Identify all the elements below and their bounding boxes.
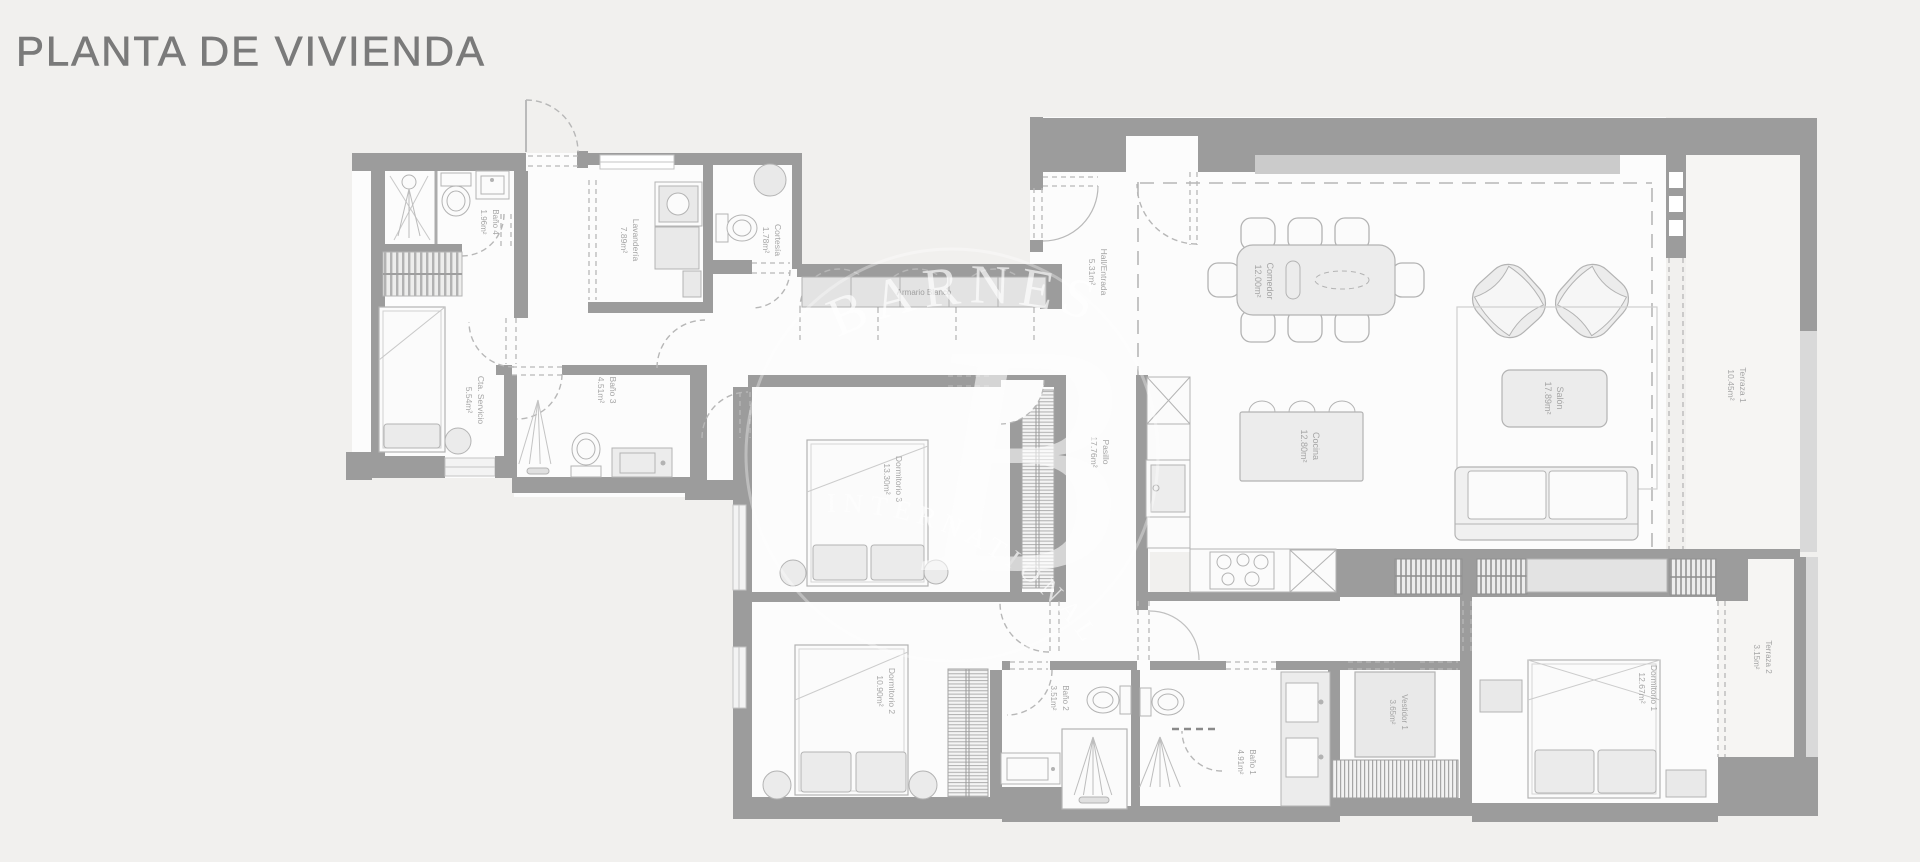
svg-text:Salón: Salón — [1555, 386, 1565, 409]
svg-text:Baño 4: Baño 4 — [491, 209, 500, 235]
svg-text:7.89m²: 7.89m² — [619, 227, 629, 254]
svg-text:12.67m²: 12.67m² — [1637, 672, 1647, 703]
svg-text:4.51m²: 4.51m² — [596, 377, 606, 404]
svg-text:Terraza 2: Terraza 2 — [1764, 640, 1773, 674]
svg-text:Baño 2: Baño 2 — [1061, 685, 1070, 711]
svg-text:5.54m²: 5.54m² — [464, 387, 474, 414]
svg-text:12.00m²: 12.00m² — [1253, 264, 1263, 297]
svg-text:Comedor: Comedor — [1265, 262, 1275, 299]
svg-text:1.96m²: 1.96m² — [479, 210, 488, 235]
svg-text:Terraza 1: Terraza 1 — [1738, 367, 1748, 403]
svg-text:Cocina: Cocina — [1311, 432, 1321, 460]
svg-text:3.65m²: 3.65m² — [1388, 700, 1397, 725]
svg-text:Lavandería: Lavandería — [631, 219, 641, 262]
svg-text:10.90m²: 10.90m² — [875, 675, 885, 706]
svg-text:Dormitorio 1: Dormitorio 1 — [1649, 665, 1659, 712]
svg-text:Baño 1: Baño 1 — [1248, 749, 1257, 775]
svg-text:Baño 3: Baño 3 — [608, 377, 618, 404]
svg-text:3.15m²: 3.15m² — [1752, 645, 1761, 670]
svg-text:B: B — [918, 277, 1120, 642]
svg-text:1.78m²: 1.78m² — [761, 227, 771, 254]
svg-text:13.30m²: 13.30m² — [882, 463, 892, 494]
svg-text:10.45m²: 10.45m² — [1726, 369, 1736, 400]
svg-text:4.91m²: 4.91m² — [1236, 750, 1245, 775]
svg-text:PLANTA DE VIVIENDA: PLANTA DE VIVIENDA — [16, 28, 486, 75]
svg-text:17.89m²: 17.89m² — [1543, 381, 1553, 414]
svg-text:12.80m²: 12.80m² — [1299, 429, 1309, 462]
svg-text:Cortesía: Cortesía — [773, 224, 783, 256]
svg-text:Cta. Servicio: Cta. Servicio — [476, 376, 486, 424]
svg-text:3.51m²: 3.51m² — [1049, 686, 1058, 711]
svg-text:Vestidor 1: Vestidor 1 — [1400, 694, 1409, 730]
svg-text:Dormitorio 2: Dormitorio 2 — [887, 668, 897, 715]
